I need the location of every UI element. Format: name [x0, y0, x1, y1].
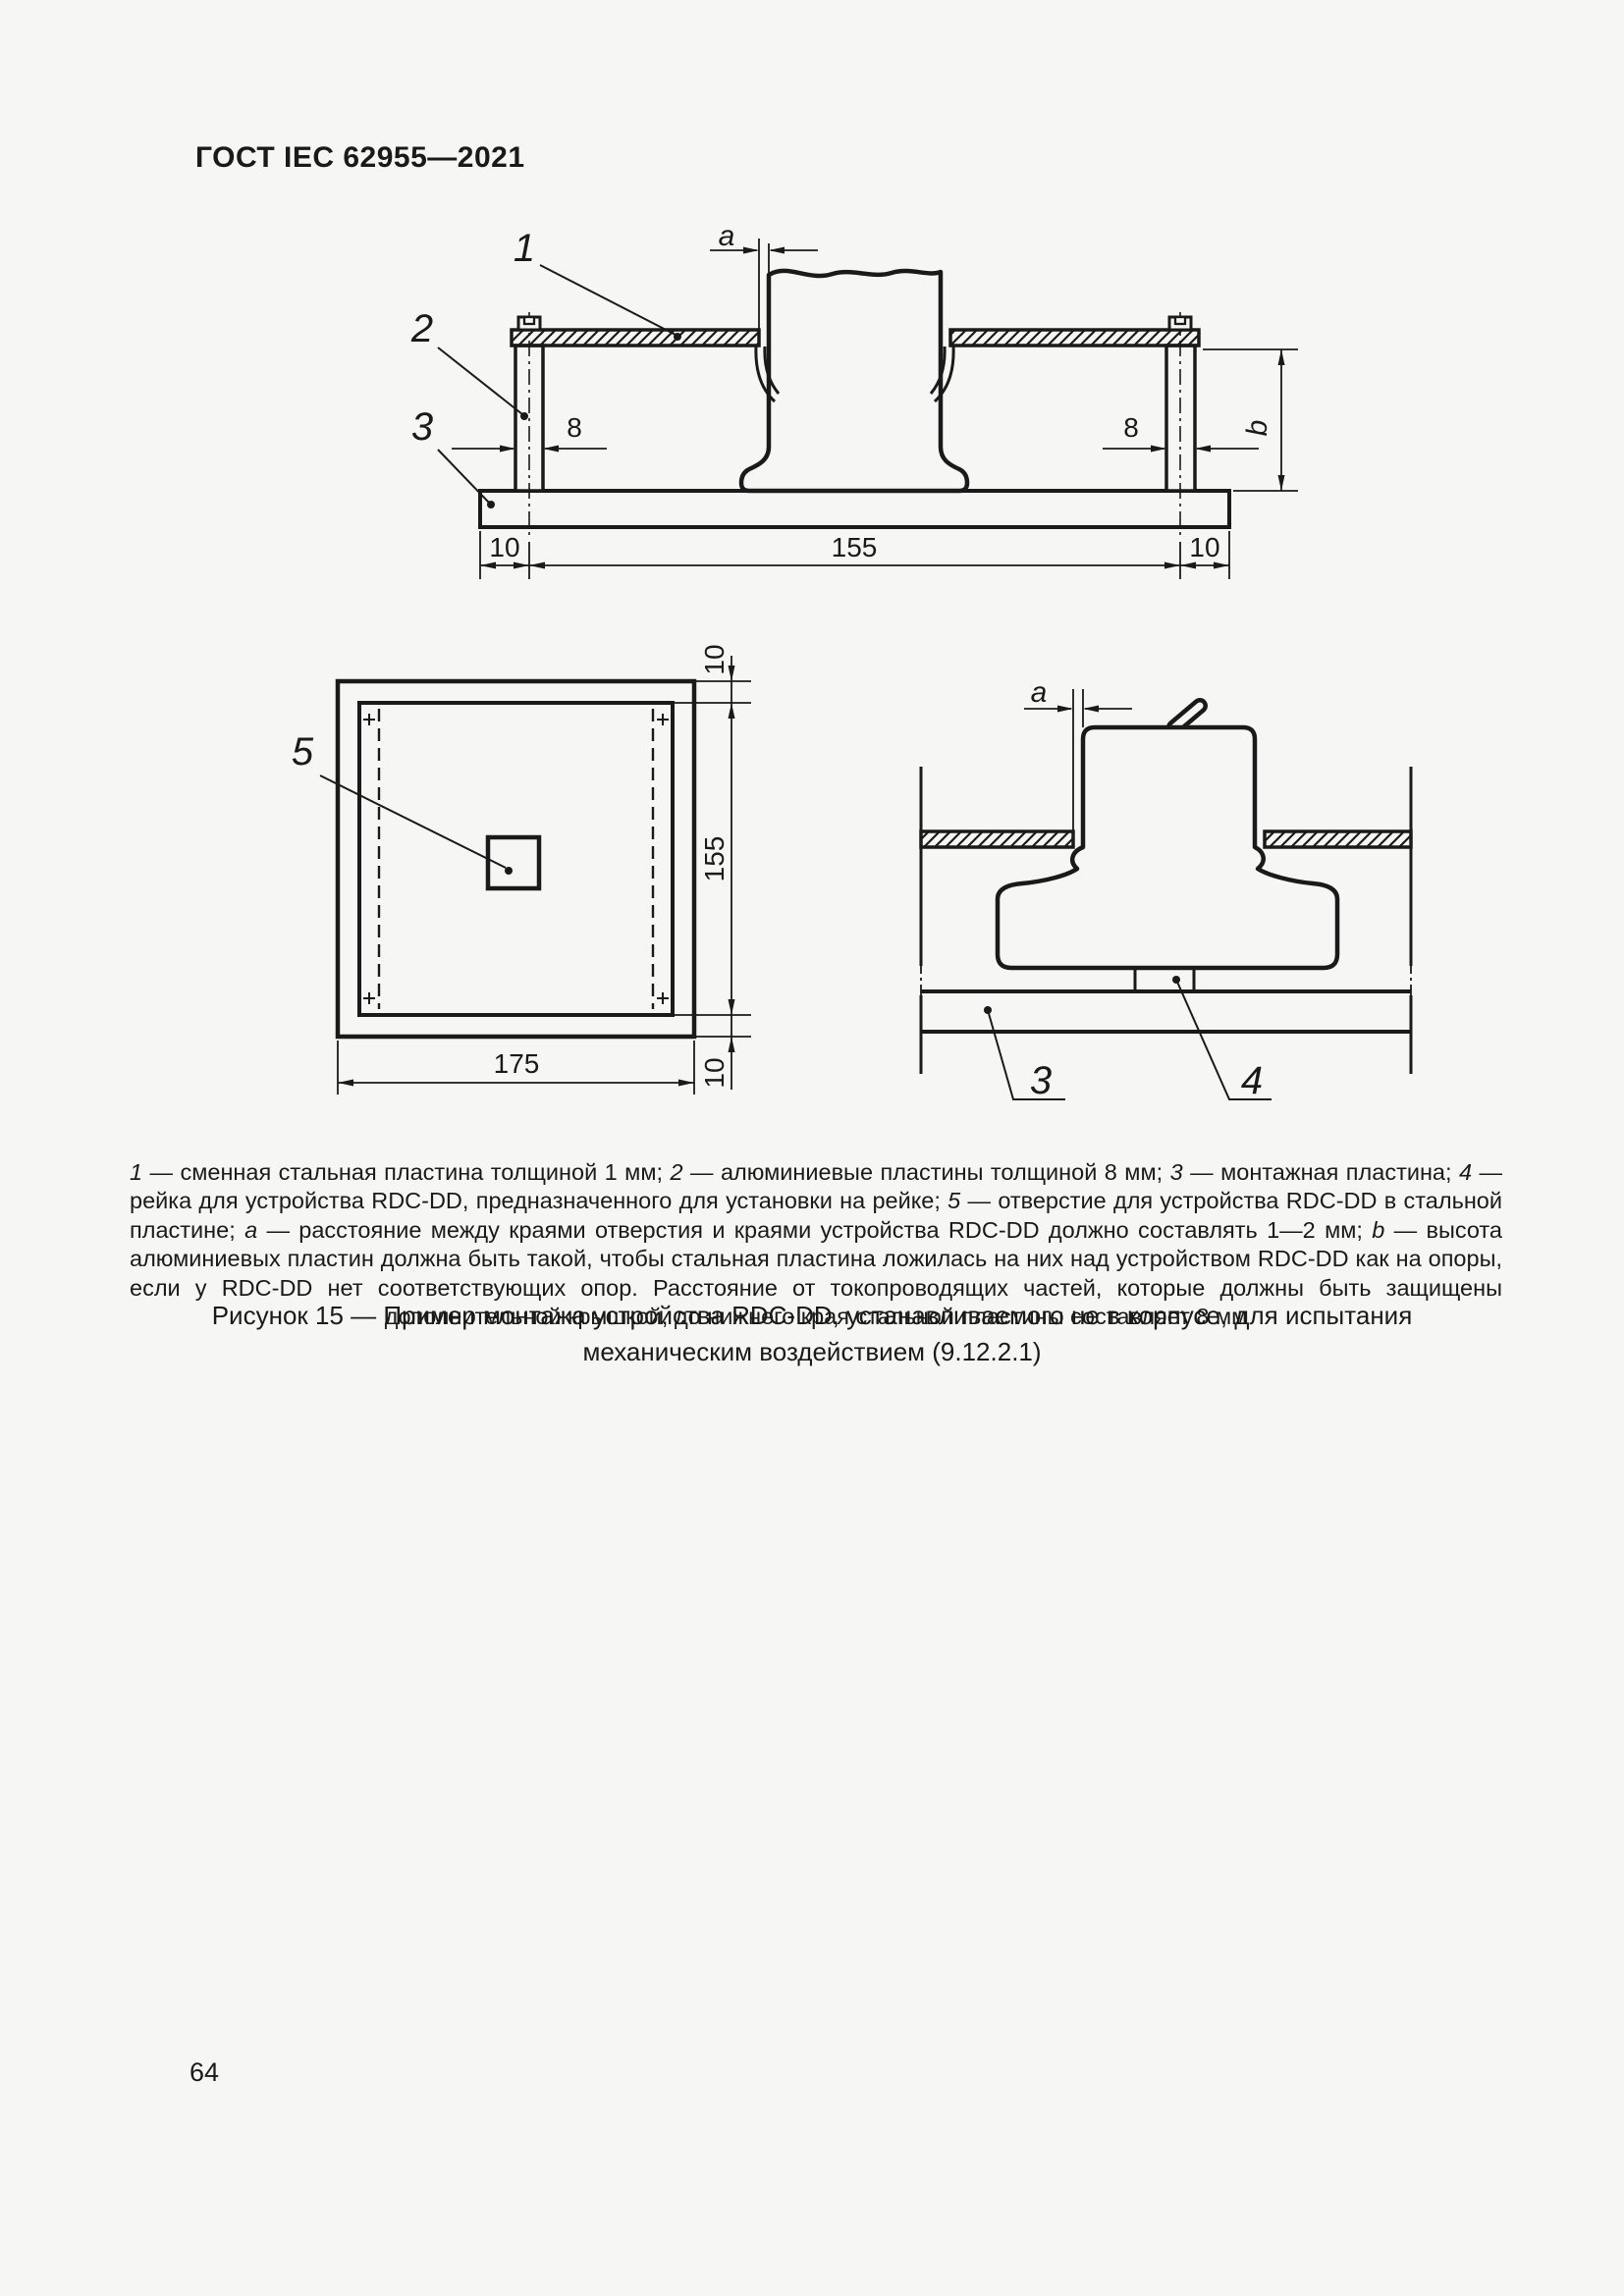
dim-10-bottom-label: 10: [699, 1057, 730, 1088]
dim-175-label: 175: [494, 1048, 540, 1079]
dim-a-label: a: [719, 221, 735, 252]
dim-b-label: b: [1241, 420, 1273, 437]
mounting-plate-outline: [338, 681, 694, 1037]
mounting-plate: [921, 991, 1411, 1032]
leader-5: [320, 775, 506, 868]
dim-10-left-label: 10: [489, 532, 519, 562]
steel-plate-right: [950, 330, 1199, 346]
corner-marks: [363, 714, 669, 1004]
screw-right: [1169, 317, 1191, 330]
page-number: 64: [189, 2057, 219, 2088]
device-body: [741, 271, 967, 491]
mounting-plate: [480, 491, 1229, 527]
part-label-2: 2: [410, 307, 433, 350]
dim-8-left-label: 8: [567, 412, 582, 443]
dim-10-right-label: 10: [1189, 532, 1219, 562]
page-title: ГОСТ IEC 62955—2021: [195, 141, 525, 175]
dim-155-label: 155: [832, 532, 878, 562]
device-lever: [1174, 706, 1200, 727]
figure-caption-line1: Рисунок 15 — Пример монтажа устройства R…: [212, 1301, 1413, 1330]
part-label-3: 3: [1030, 1059, 1052, 1102]
figure-top-view: a 8 8 b 10 155: [403, 221, 1316, 586]
figure-caption: Рисунок 15 — Пример монтажа устройства R…: [125, 1298, 1499, 1370]
dim-10-top-label: 10: [699, 644, 730, 674]
aluminium-plate-hidden-edges: [379, 709, 653, 1009]
arrow: [769, 247, 785, 254]
part-label-3: 3: [411, 405, 433, 449]
part-label-1: 1: [514, 227, 535, 270]
document-page: ГОСТ IEC 62955—2021: [0, 0, 1624, 2296]
part-label-5: 5: [292, 730, 314, 774]
arrow: [743, 247, 759, 254]
part-label-4: 4: [1241, 1059, 1263, 1102]
figure-plate-view: 5 10 155 10 175: [275, 628, 766, 1104]
figure-caption-line2: механическим воздействием (9.12.2.1): [582, 1337, 1041, 1366]
dim-155-label: 155: [699, 836, 730, 882]
dim-8-right-label: 8: [1123, 412, 1139, 443]
din-rail: [1135, 968, 1194, 991]
screw-left: [518, 317, 540, 330]
steel-plate-left: [921, 831, 1073, 847]
steel-plate-left: [512, 330, 759, 346]
leaders: [438, 265, 676, 503]
dim-a-label: a: [1031, 676, 1048, 709]
steel-plate-right: [1265, 831, 1411, 847]
figure-side-view: a 3 4: [903, 648, 1434, 1119]
steel-plate-outline: [359, 703, 673, 1015]
